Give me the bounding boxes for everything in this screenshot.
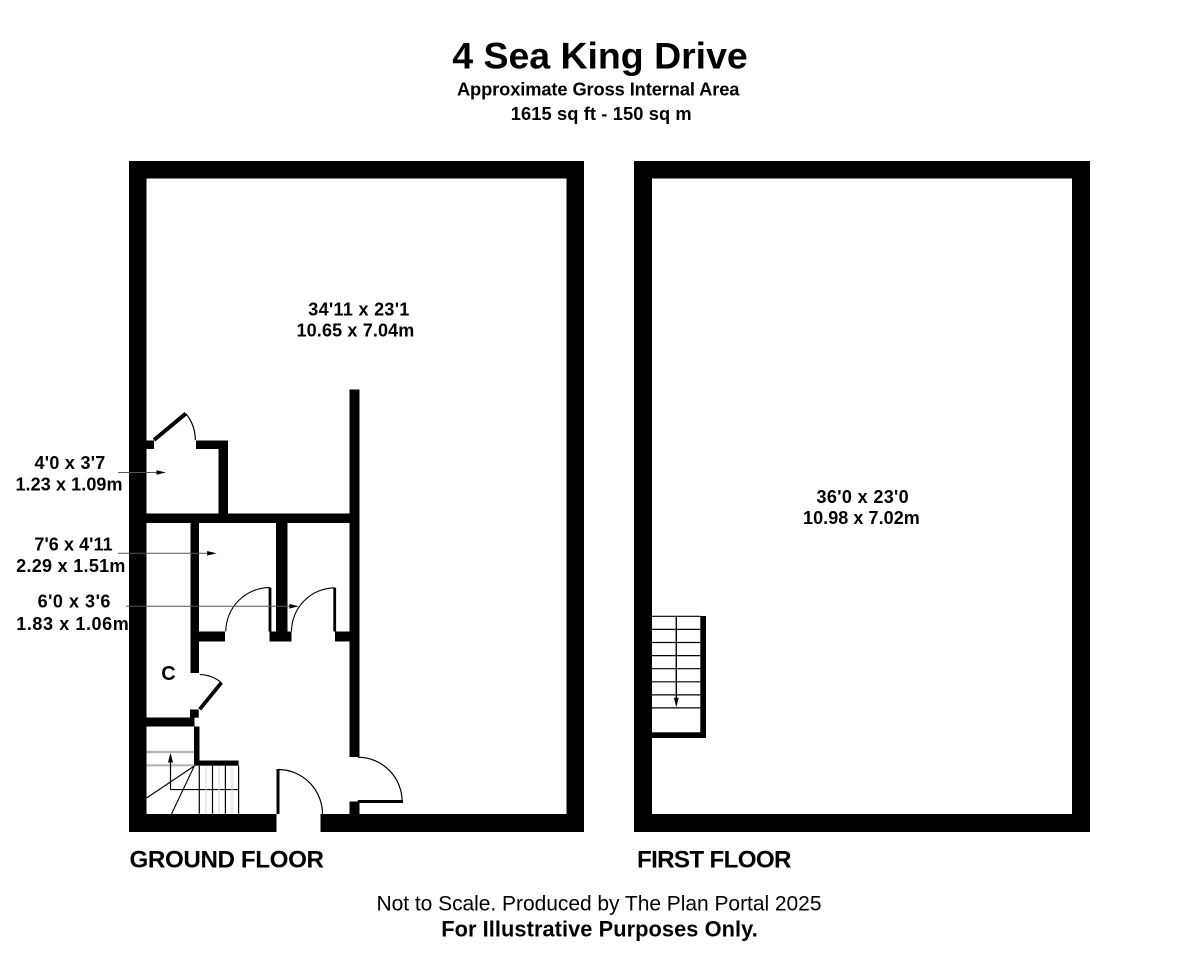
svg-text:C: C — [161, 663, 175, 685]
svg-text:36'0 x 23'0: 36'0 x 23'0 — [817, 487, 909, 507]
svg-text:10.65 x 7.04m: 10.65 x 7.04m — [297, 321, 415, 341]
svg-text:6'0 x 3'6: 6'0 x 3'6 — [38, 591, 111, 611]
svg-text:4 Sea King Drive: 4 Sea King Drive — [452, 35, 748, 77]
svg-text:4'0 x 3'7: 4'0 x 3'7 — [35, 453, 106, 473]
svg-text:1615 sq ft - 150 sq m: 1615 sq ft - 150 sq m — [511, 103, 692, 124]
svg-text:34'11 x 23'1: 34'11 x 23'1 — [308, 299, 409, 319]
svg-text:10.98 x 7.02m: 10.98 x 7.02m — [803, 508, 920, 528]
svg-text:For Illustrative Purposes Only: For Illustrative Purposes Only. — [441, 917, 758, 942]
svg-text:7'6 x 4'11: 7'6 x 4'11 — [34, 535, 112, 555]
svg-text:FIRST FLOOR: FIRST FLOOR — [637, 847, 792, 874]
svg-text:Not to Scale. Produced by The: Not to Scale. Produced by The Plan Porta… — [377, 893, 822, 916]
svg-text:2.29 x 1.51m: 2.29 x 1.51m — [16, 556, 125, 576]
svg-text:1.83 x 1.06m: 1.83 x 1.06m — [16, 614, 129, 634]
svg-text:1.23 x 1.09m: 1.23 x 1.09m — [15, 475, 122, 495]
svg-text:GROUND FLOOR: GROUND FLOOR — [130, 847, 325, 874]
svg-text:Approximate Gross Internal Are: Approximate Gross Internal Area — [457, 79, 740, 100]
